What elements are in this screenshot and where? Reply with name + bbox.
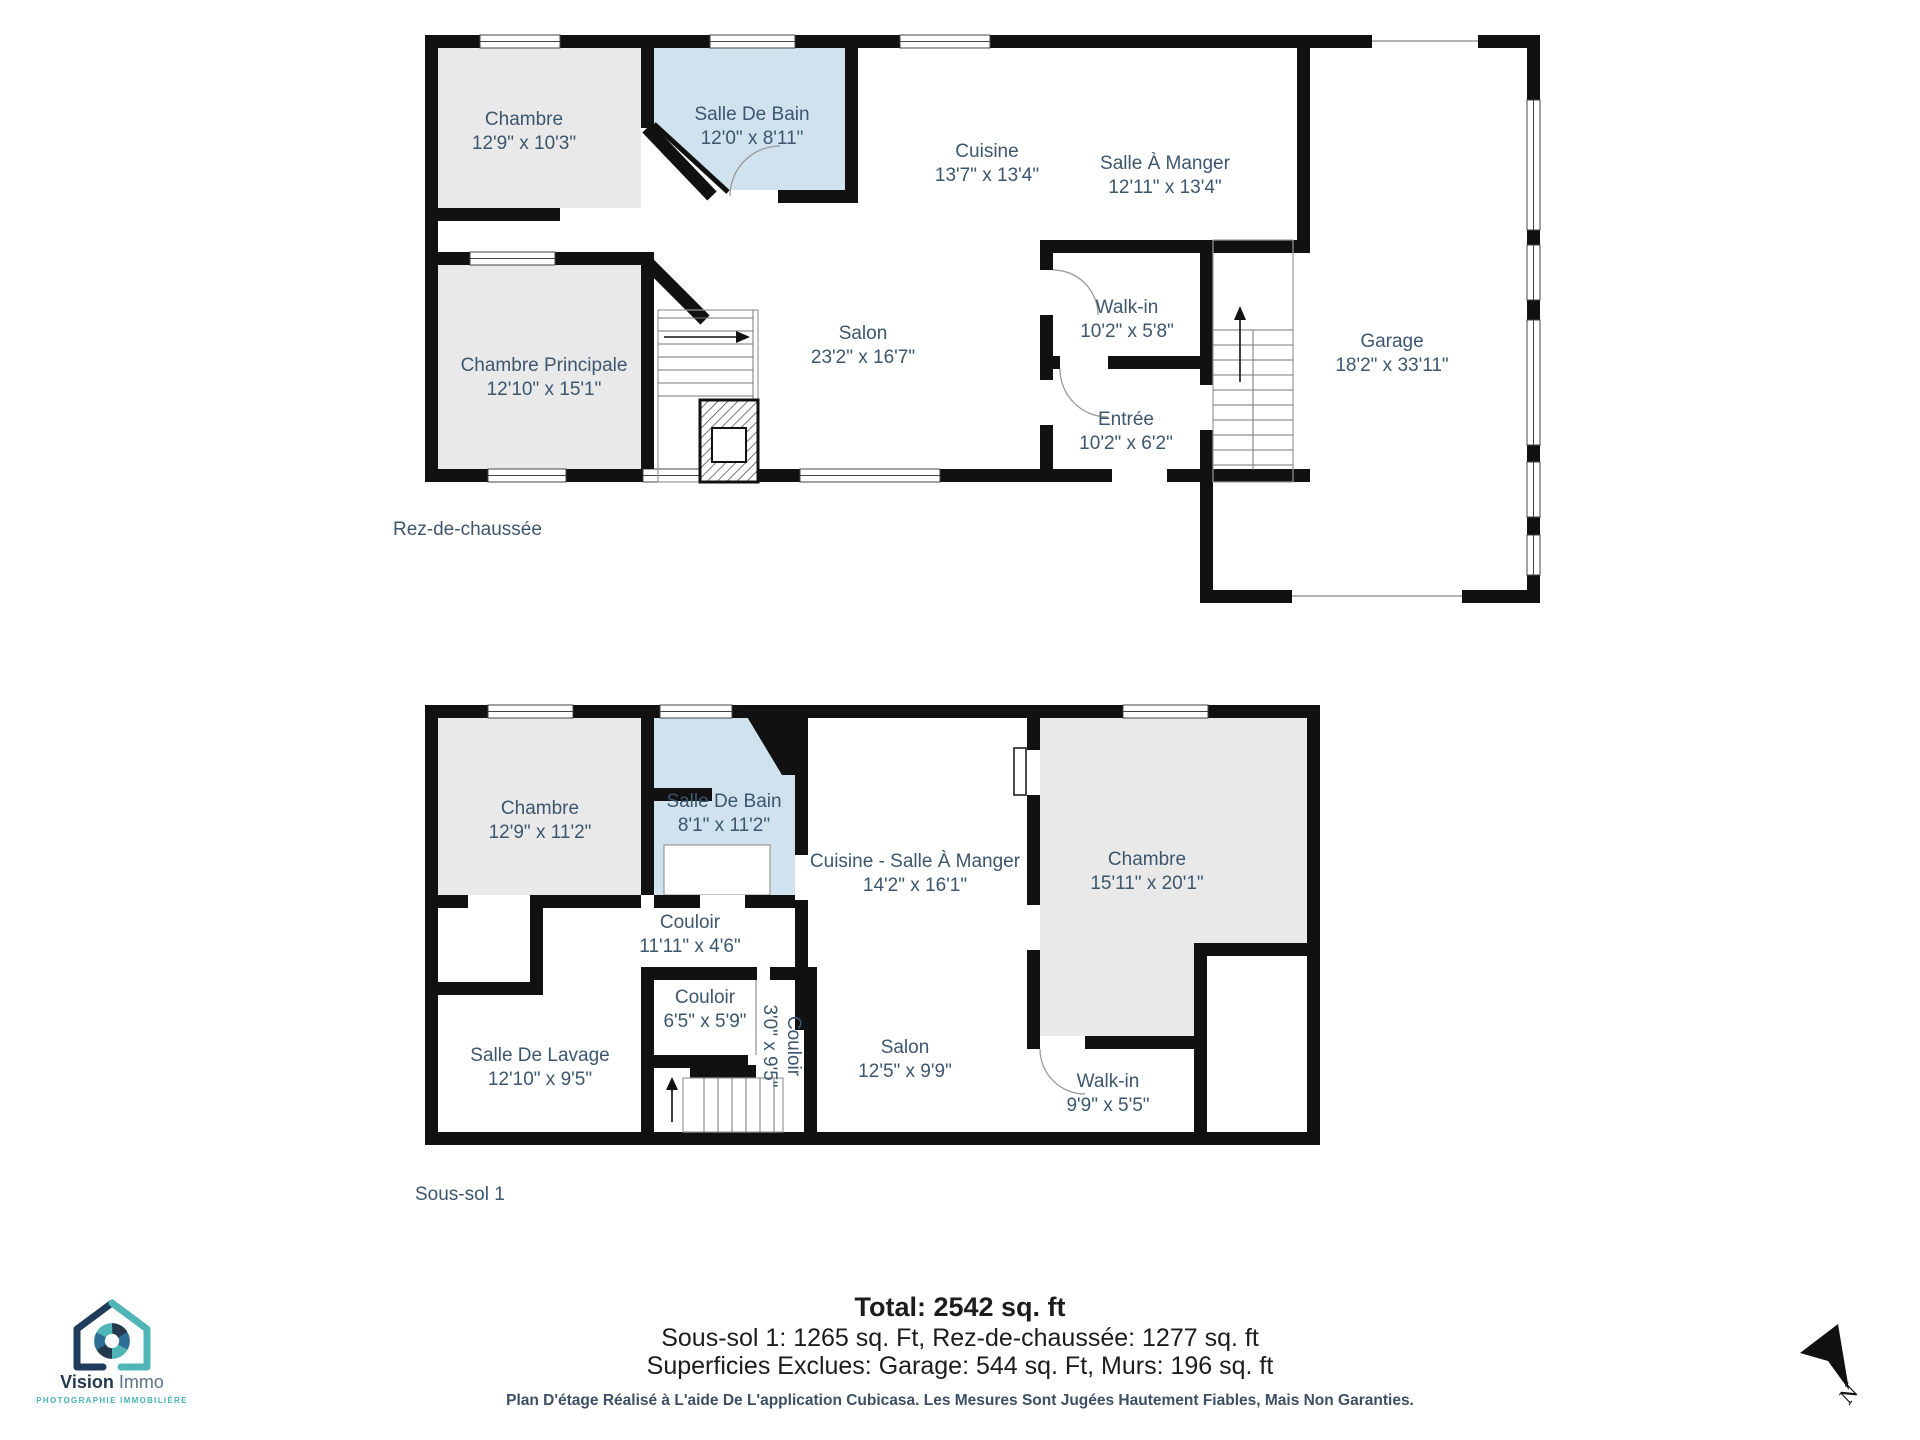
logo-name-secondary: Immo bbox=[114, 1372, 164, 1392]
floorplan-drawing bbox=[0, 0, 1920, 1440]
floor-rez-de-chaussee bbox=[425, 35, 1540, 603]
window-icon bbox=[1527, 100, 1540, 575]
room-label: Chambre Principale12'10" x 15'1" bbox=[461, 354, 628, 402]
stairs-icon bbox=[658, 310, 758, 482]
room-label: Cuisine - Salle À Manger14'2" x 16'1" bbox=[810, 850, 1020, 898]
summary-excluded-areas: Superficies Exclues: Garage: 544 sq. Ft,… bbox=[0, 1352, 1920, 1381]
floor-label-sous-sol: Sous-sol 1 bbox=[415, 1184, 505, 1206]
vision-immo-logo-text: Vision Immo bbox=[60, 1372, 164, 1393]
room-label: Salle De Bain8'1" x 11'2" bbox=[666, 790, 781, 838]
room-label: Garage18'2" x 33'11" bbox=[1335, 330, 1448, 378]
room-label: Chambre12'9" x 10'3" bbox=[472, 108, 576, 156]
room-label: Salon12'5" x 9'9" bbox=[858, 1036, 952, 1084]
room-label: Couloir6'5" x 5'9" bbox=[663, 986, 746, 1034]
logo-name-primary: Vision bbox=[60, 1372, 114, 1392]
room-label: Chambre12'9" x 11'2" bbox=[489, 797, 592, 845]
room-label: Chambre15'11" x 20'1" bbox=[1090, 848, 1203, 896]
summary-total: Total: 2542 sq. ft bbox=[0, 1292, 1920, 1323]
room-label: Walk-in9'9" x 5'5" bbox=[1066, 1070, 1149, 1118]
room-label: Salle De Lavage12'10" x 9'5" bbox=[470, 1044, 609, 1092]
floor-label-rez-de-chaussee: Rez-de-chaussée bbox=[393, 519, 542, 541]
room-label: Entrée10'2" x 6'2" bbox=[1079, 408, 1173, 456]
vision-immo-logo-tagline: PHOTOGRAPHIE IMMOBILIÈRE bbox=[36, 1396, 188, 1405]
summary-disclaimer: Plan D'étage Réalisé à L'aide De L'appli… bbox=[0, 1392, 1920, 1410]
room-label: Couloir11'11" x 4'6" bbox=[639, 911, 740, 959]
window-icon bbox=[480, 35, 990, 48]
room-label: Salon23'2" x 16'7" bbox=[811, 322, 915, 370]
summary-floor-areas: Sous-sol 1: 1265 sq. Ft, Rez-de-chaussée… bbox=[0, 1324, 1920, 1353]
room-label: Walk-in10'2" x 5'8" bbox=[1080, 296, 1174, 344]
room-label: Salle De Bain12'0" x 8'11" bbox=[694, 103, 809, 151]
room-label: Salle À Manger12'11" x 13'4" bbox=[1100, 152, 1230, 200]
stairs-icon bbox=[1213, 240, 1293, 482]
room-label: Couloir3'0" x 9'5" bbox=[757, 1004, 805, 1087]
room-label: Cuisine13'7" x 13'4" bbox=[935, 140, 1039, 188]
floorplan-page: Chambre12'9" x 10'3" Salle De Bain12'0" … bbox=[0, 0, 1920, 1440]
